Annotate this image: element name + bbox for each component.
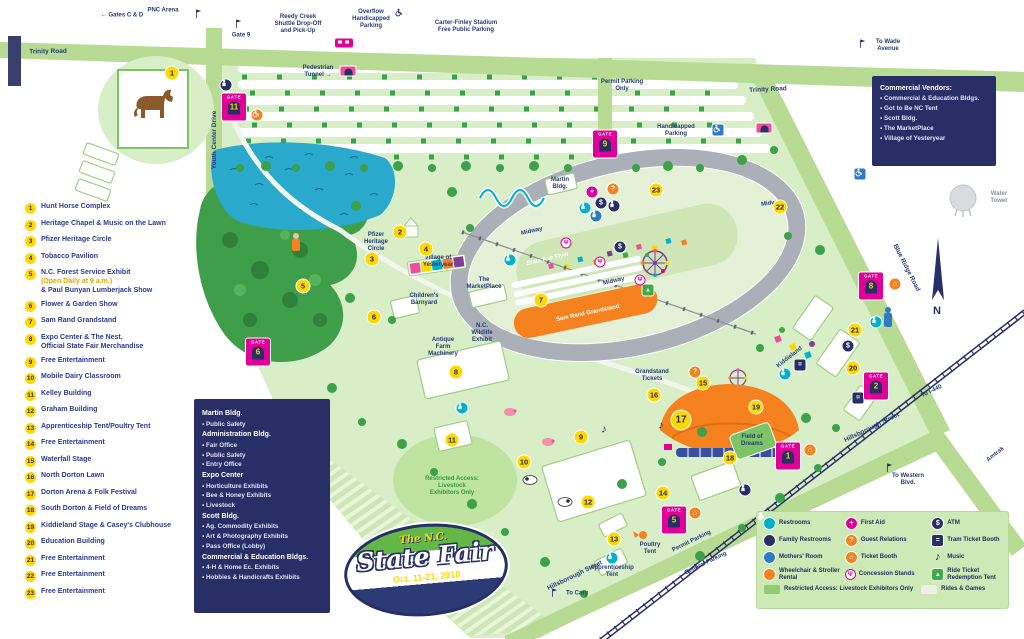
map-key-item: 15Waterfall Stage <box>25 456 199 467</box>
building-group-item: Public Safety <box>202 451 322 461</box>
map-key-number: 3 <box>25 236 36 247</box>
map-key-label: Dorton Arena & Folk Festival <box>41 489 137 498</box>
building-group-title: Administration Bldg. <box>202 430 322 441</box>
map-key-item: 14Free Entertainment <box>25 439 199 450</box>
legend-item: Mothers' Room <box>764 551 842 564</box>
building-group-title: Commercial & Education Bldgs. <box>202 553 322 564</box>
legend-item: +First Aid <box>846 517 928 530</box>
map-key-number: 15 <box>25 456 36 467</box>
map-key-item: 5N.C. Forest Service Exhibit (Open Daily… <box>25 269 199 295</box>
map-legend-swatches: Restricted Access: Livestock Exhibitors … <box>764 585 1001 594</box>
map-key-label: Waterfall Stage <box>41 456 91 465</box>
map-key-number: 17 <box>25 489 36 500</box>
legend-item: ♪Music <box>932 551 1001 564</box>
commercial-vendor-item: The MarketPlace <box>880 124 988 134</box>
map-key-label: Free Entertainment <box>41 588 105 597</box>
map-key-item: 19Kiddieland Stage & Casey's Clubhouse <box>25 522 199 533</box>
map-key-label: Apprenticeship Tent/Poultry Tent <box>41 423 150 432</box>
legend-label: Guest Relations <box>861 537 907 544</box>
legend-item: Wheelchair & Stroller Rental <box>764 568 842 581</box>
commercial-vendor-item: Scott Bldg. <box>880 114 988 124</box>
map-key-item: 16North Dorton Lawn <box>25 472 199 483</box>
map-key-label: Hunt Horse Complex <box>41 203 110 212</box>
map-key-number: 12 <box>25 406 36 417</box>
map-key-label: N.C. Forest Service Exhibit (Open Daily … <box>41 269 152 295</box>
mom-icon <box>764 552 775 563</box>
building-group-item: Bee & Honey Exhibits <box>202 491 322 501</box>
map-key-label: North Dorton Lawn <box>41 472 104 481</box>
building-group-title: Expo Center <box>202 471 322 482</box>
map-key-item: 12Graham Building <box>25 406 199 417</box>
building-group-title: Scott Bldg. <box>202 512 322 523</box>
con-icon: Ψ <box>846 570 855 579</box>
map-key-number: 22 <box>25 571 36 582</box>
music-icon: ♪ <box>932 552 943 563</box>
legend-swatch-item: Rides & Games <box>921 585 985 594</box>
commercial-vendor-item: Got to Be NC Tent <box>880 104 988 114</box>
map-key-item: 6Flower & Garden Show <box>25 301 199 312</box>
map-key-list: 1Hunt Horse Complex2Heritage Chapel & Mu… <box>25 203 199 604</box>
map-legend-grid: Restrooms+First Aid$ATMFamily Restrooms?… <box>764 517 1001 581</box>
buildings-info-box: Martin Bldg.Public SafetyAdministration … <box>194 399 330 613</box>
tk-icon: ⌂ <box>846 552 857 563</box>
rr-icon <box>764 518 775 529</box>
map-key-label: Education Building <box>41 538 105 547</box>
building-group-item: Pass Office (Lobby) <box>202 542 322 552</box>
map-key-item: 21Free Entertainment <box>25 555 199 566</box>
map-key-number: 1 <box>25 203 36 214</box>
building-group-item: Ag. Commodity Exhibits <box>202 522 322 532</box>
legend-label: Restrooms <box>779 520 810 527</box>
buildings-info-groups: Martin Bldg.Public SafetyAdministration … <box>202 409 322 583</box>
building-group-item: Livestock <box>202 501 322 511</box>
map-key-item: 1Hunt Horse Complex <box>25 203 199 214</box>
legend-label: Family Restrooms <box>779 537 831 544</box>
map-key-item: 18South Dorton & Field of Dreams <box>25 505 199 516</box>
map-key-number: 16 <box>25 472 36 483</box>
legend-label: Concession Stands <box>859 571 915 578</box>
lake <box>211 142 395 230</box>
aid-icon: + <box>846 518 857 529</box>
atm-icon: $ <box>932 518 943 529</box>
wc-icon <box>764 569 775 580</box>
building-group-item: Horticulture Exhibits <box>202 482 322 492</box>
map-key-number: 4 <box>25 253 36 264</box>
legend-label: Ride Ticket Redemption Tent <box>947 568 1001 581</box>
commercial-vendors-title: Commercial Vendors: <box>880 84 988 94</box>
map-key-item: 9Free Entertainment <box>25 357 199 368</box>
legend-label: Music <box>947 554 964 561</box>
commercial-vendor-item: Village of Yesteryear <box>880 134 988 144</box>
map-key-item: 2Heritage Chapel & Music on the Lawn <box>25 220 199 231</box>
svg-text:N: N <box>933 305 941 317</box>
legend-item: ?Guest Relations <box>846 534 928 547</box>
map-key-number: 10 <box>25 373 36 384</box>
legend-label: Restricted Access: Livestock Exhibitors … <box>784 586 913 593</box>
map-key-item: 11Kelley Building <box>25 390 199 401</box>
map-key-item: 20Education Building <box>25 538 199 549</box>
map-key-item: 7Sam Rand Grandstand <box>25 317 199 328</box>
legend-item: ⌂Ticket Booth <box>846 551 928 564</box>
map-key-number: 19 <box>25 522 36 533</box>
legend-item: Family Restrooms <box>764 534 842 547</box>
legend-item: =Tram Ticket Booth <box>932 534 1001 547</box>
legend-label: Ticket Booth <box>861 554 897 561</box>
water-tower <box>950 185 976 217</box>
map-key-label: Free Entertainment <box>41 555 105 564</box>
map-key-label: Flower & Garden Show <box>41 301 118 310</box>
map-key-number: 8 <box>25 334 36 345</box>
legend-swatch-item: Restricted Access: Livestock Exhibitors … <box>764 585 913 594</box>
person-figure <box>884 307 892 327</box>
map-key-number: 23 <box>25 588 36 599</box>
ride-icon: ▲ <box>932 569 943 580</box>
map-key-item: 17Dorton Arena & Folk Festival <box>25 489 199 500</box>
hunt-horse-complex <box>98 56 214 164</box>
building-group-title: Martin Bldg. <box>202 409 322 420</box>
legend-swatch <box>921 585 937 594</box>
map-key-label: Free Entertainment <box>41 439 105 448</box>
map-key-label: Mobile Dairy Classroom <box>41 373 121 382</box>
map-key-number: 2 <box>25 220 36 231</box>
map-key-item: 23Free Entertainment <box>25 588 199 599</box>
building-group-item: Art & Photography Exhibits <box>202 532 322 542</box>
tram-icon: = <box>932 535 943 546</box>
map-key-number: 5 <box>25 269 36 280</box>
map-key-label: Kelley Building <box>41 390 92 399</box>
legend-label: ATM <box>947 520 960 527</box>
building-group-item: 4-H & Home Ec. Exhibits <box>202 563 322 573</box>
map-key-number: 9 <box>25 357 36 368</box>
map-key-label: Graham Building <box>41 406 97 415</box>
map-key-number: 11 <box>25 390 36 401</box>
map-key-label: South Dorton & Field of Dreams <box>41 505 147 514</box>
map-key-item: 22Free Entertainment <box>25 571 199 582</box>
logo-main-text: State Fair <box>355 538 494 576</box>
map-key-number: 13 <box>25 423 36 434</box>
legend-label: Rides & Games <box>941 586 985 593</box>
map-key-item: 10Mobile Dairy Classroom <box>25 373 199 384</box>
map-key-number: 18 <box>25 505 36 516</box>
legend-item: ▲Ride Ticket Redemption Tent <box>932 568 1001 581</box>
commercial-vendor-item: Commercial & Education Bldgs. <box>880 94 988 104</box>
map-key-number: 14 <box>25 439 36 450</box>
map-key-number: 21 <box>25 555 36 566</box>
building-group-item: Fair Office <box>202 441 322 451</box>
map-key-note: (Open Daily at 9 a.m.) <box>41 278 112 285</box>
legend-label: Tram Ticket Booth <box>947 537 999 544</box>
map-key-label: Tobacco Pavilion <box>41 253 98 262</box>
legend-swatch <box>764 585 780 594</box>
legend-label: Mothers' Room <box>779 554 822 561</box>
legend-label: Wheelchair & Stroller Rental <box>779 568 842 581</box>
map-key-label: Free Entertainment <box>41 571 105 580</box>
map-key-item: 3Pfizer Heritage Circle <box>25 236 199 247</box>
map-key-number: 7 <box>25 317 36 328</box>
map-key-number: 20 <box>25 538 36 549</box>
map-key-label: Kiddieland Stage & Casey's Clubhouse <box>41 522 171 531</box>
legend-label: First Aid <box>861 520 885 527</box>
map-key-number: 6 <box>25 301 36 312</box>
map-key-label: Heritage Chapel & Music on the Lawn <box>41 220 166 229</box>
compass-north-arrow: N <box>932 238 944 317</box>
legend-item: ΨConcession Stands <box>846 568 928 581</box>
building-group-item: Public Safety <box>202 420 322 430</box>
map-key-item: 8Expo Center & The Nest, Official State … <box>25 334 199 352</box>
gr-icon: ? <box>846 535 857 546</box>
lumberjack-figure <box>292 233 300 251</box>
commercial-vendors-box: Commercial Vendors: Commercial & Educati… <box>872 76 996 166</box>
legend-item: Restrooms <box>764 517 842 530</box>
nc-state-fair-map: N ← Gates C & DPNC ArenaGate 9Reedy Cree… <box>0 0 1024 639</box>
map-legend: Restrooms+First Aid$ATMFamily Restrooms?… <box>756 511 1009 609</box>
map-key-label: Sam Rand Grandstand <box>41 317 116 326</box>
map-key-item: 4Tobacco Pavilion <box>25 253 199 264</box>
legend-item: $ATM <box>932 517 1001 530</box>
fam-icon <box>764 535 775 546</box>
map-key-label: Expo Center & The Nest, Official State F… <box>41 334 143 352</box>
map-key-label: Free Entertainment <box>41 357 105 366</box>
map-key-label: Pfizer Heritage Circle <box>41 236 111 245</box>
commercial-vendors-items: Commercial & Education Bldgs.Got to Be N… <box>880 94 988 144</box>
building-group-item: Hobbies & Handicrafts Exhibits <box>202 573 322 583</box>
map-key-item: 13Apprenticeship Tent/Poultry Tent <box>25 423 199 434</box>
map-key-label-2: & Paul Bunyan Lumberjack Show <box>41 287 152 294</box>
building-group-item: Entry Office <box>202 460 322 470</box>
